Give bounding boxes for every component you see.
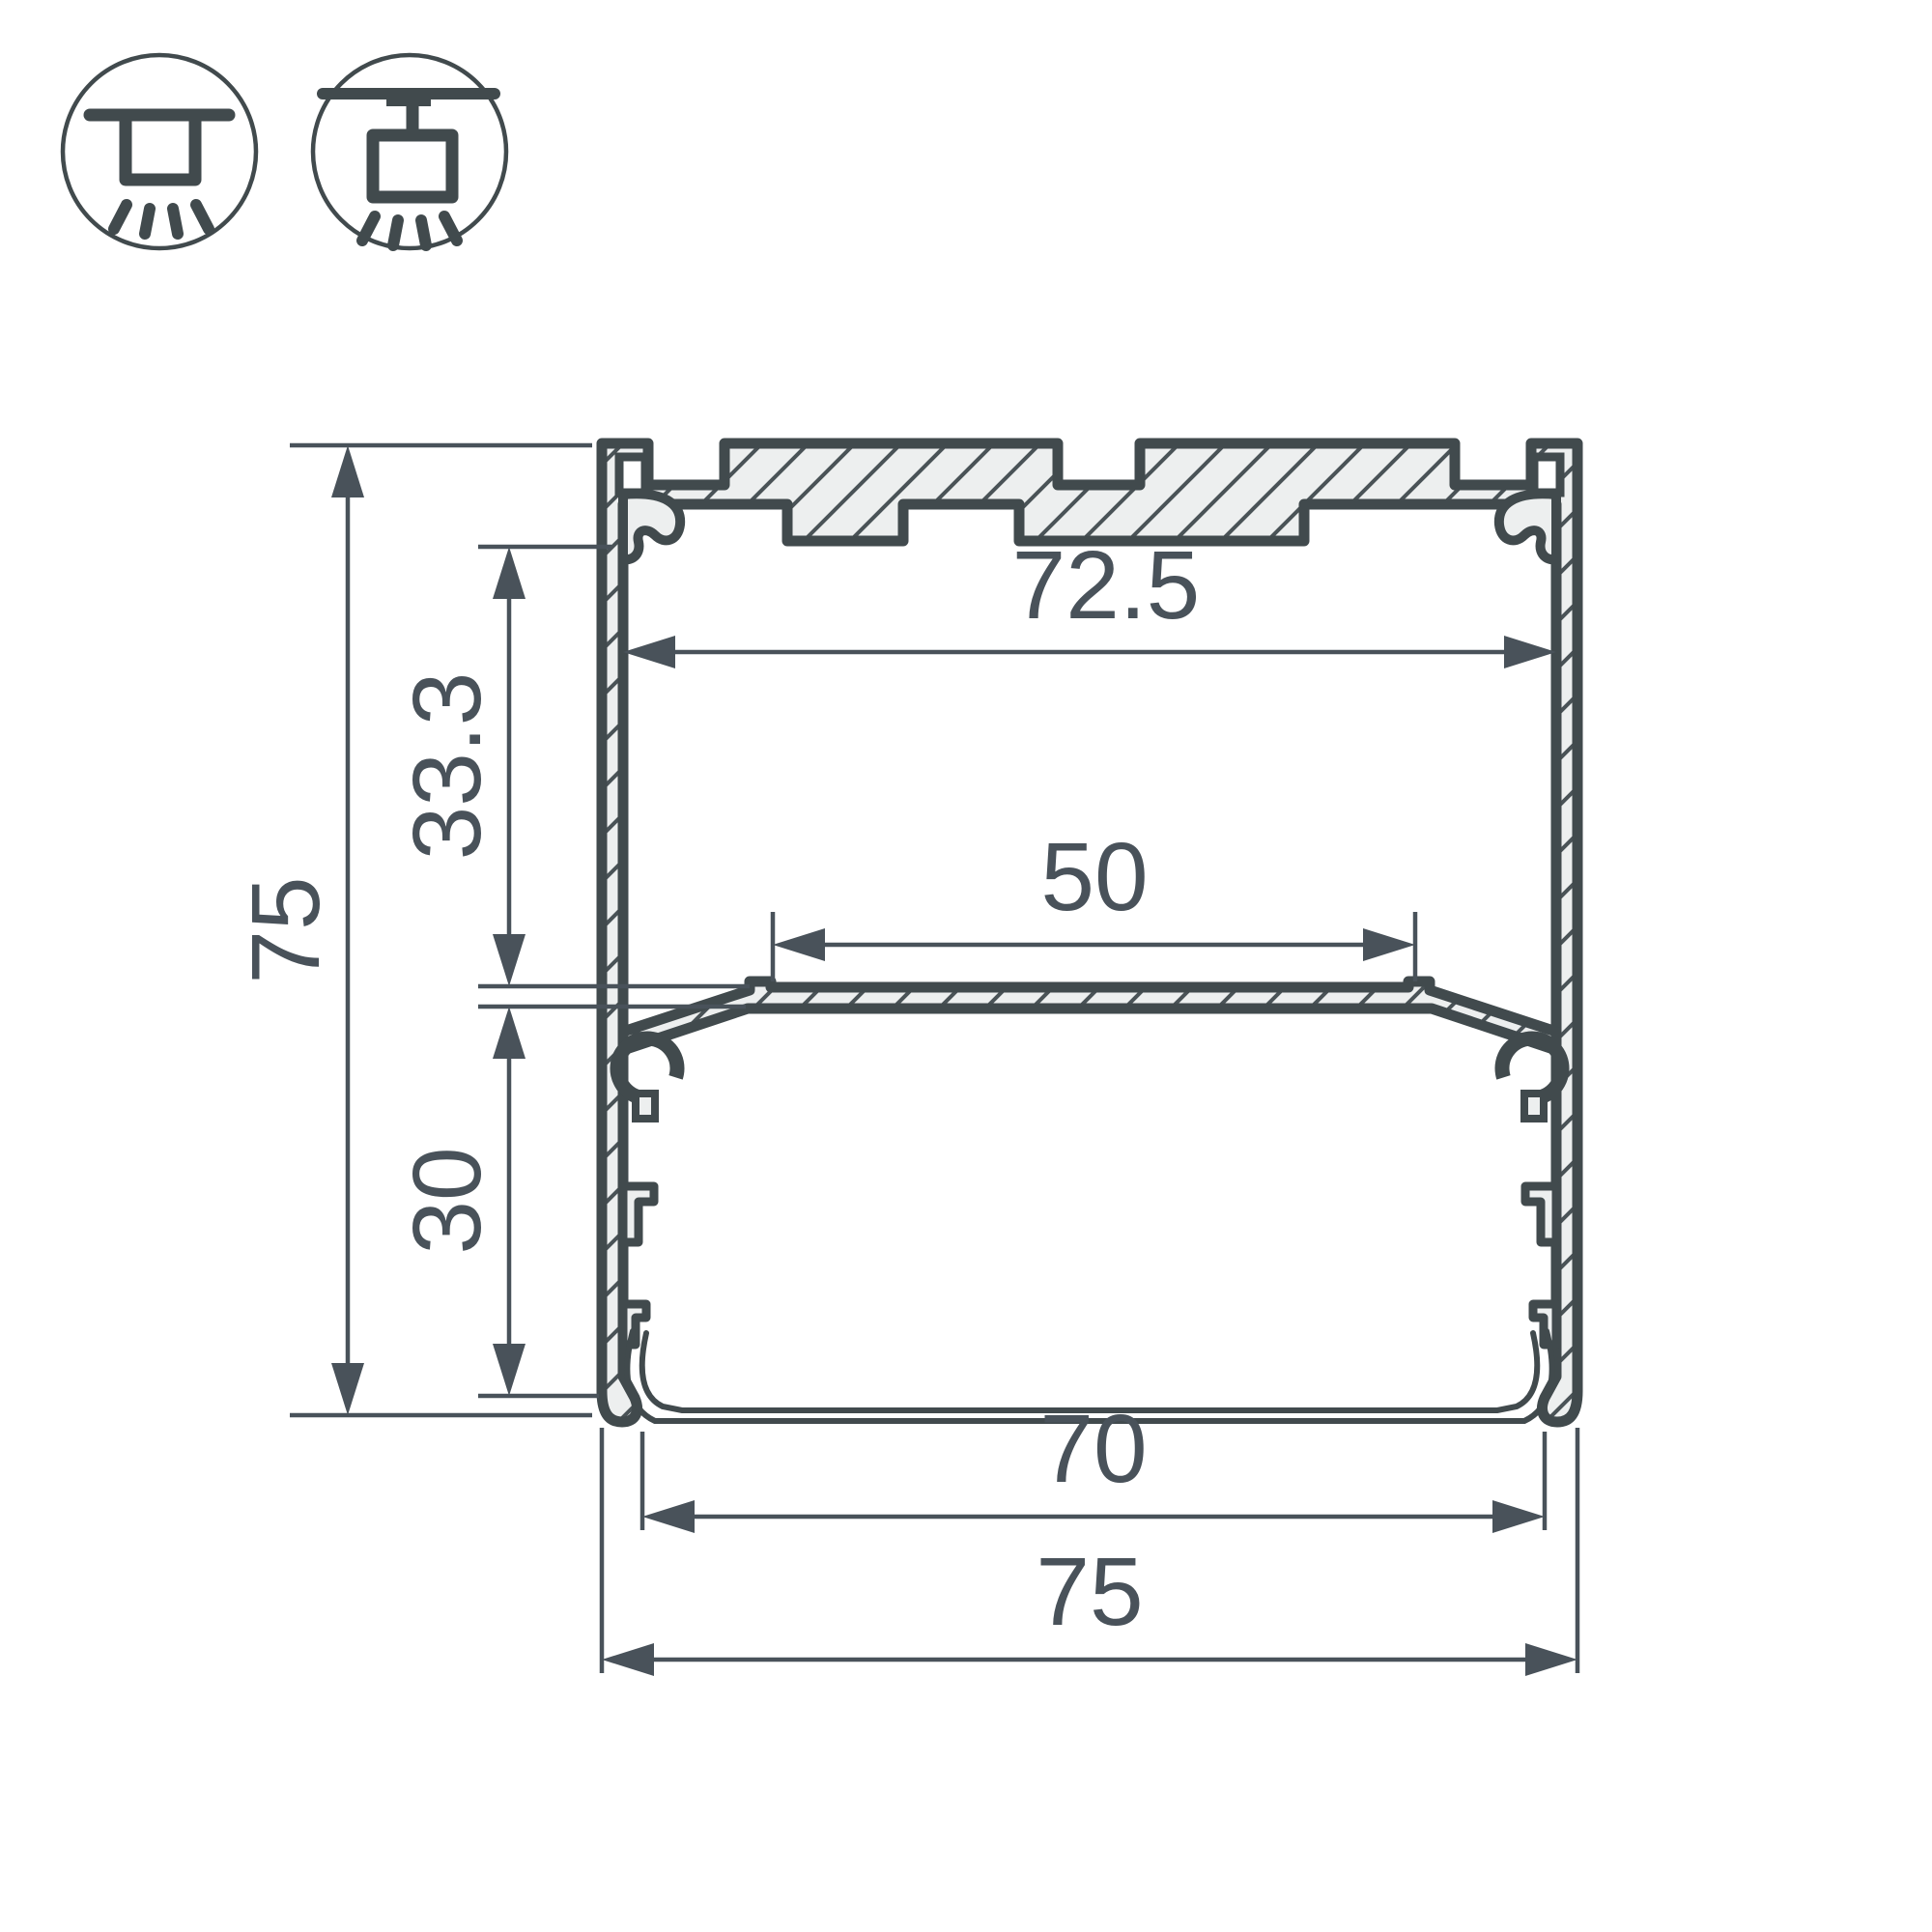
dim-label-plate-width: 50 (1040, 823, 1148, 931)
dim-label-total-height: 75 (232, 876, 340, 983)
dim-top-to-plate: 33.3 (393, 547, 750, 986)
surface-mount-icon (63, 55, 256, 248)
dim-inner-width: 72.5 (623, 531, 1556, 668)
profile-drawing-canvas: 75 33.3 30 72.5 (0, 0, 1932, 1932)
technical-drawing-page: 75 33.3 30 72.5 (0, 0, 1932, 1932)
spring-clip (623, 494, 680, 559)
dim-label-total-width: 75 (1036, 1538, 1143, 1646)
dim-plate-width: 50 (773, 823, 1415, 981)
light-rays-icon (114, 205, 209, 234)
dim-label-diffuser-width: 70 (1039, 1395, 1147, 1503)
dim-total-height: 75 (232, 445, 592, 1415)
mid-hook (623, 1186, 654, 1242)
dim-label-plate-to-bottom: 30 (393, 1147, 501, 1254)
led-mounting-plate (623, 981, 1556, 1050)
dim-diffuser-width: 70 (642, 1395, 1545, 1533)
dim-label-inner-width: 72.5 (1012, 531, 1201, 639)
dim-label-top-to-plate: 33.3 (393, 672, 501, 861)
corner-notch (619, 457, 645, 493)
dimensions: 75 33.3 30 72.5 (232, 445, 1577, 1676)
pendant-mount-icon (313, 55, 506, 248)
dim-plate-to-bottom: 30 (393, 1007, 746, 1396)
screw-boss-foot (636, 1094, 655, 1119)
mount-icons (63, 55, 506, 248)
